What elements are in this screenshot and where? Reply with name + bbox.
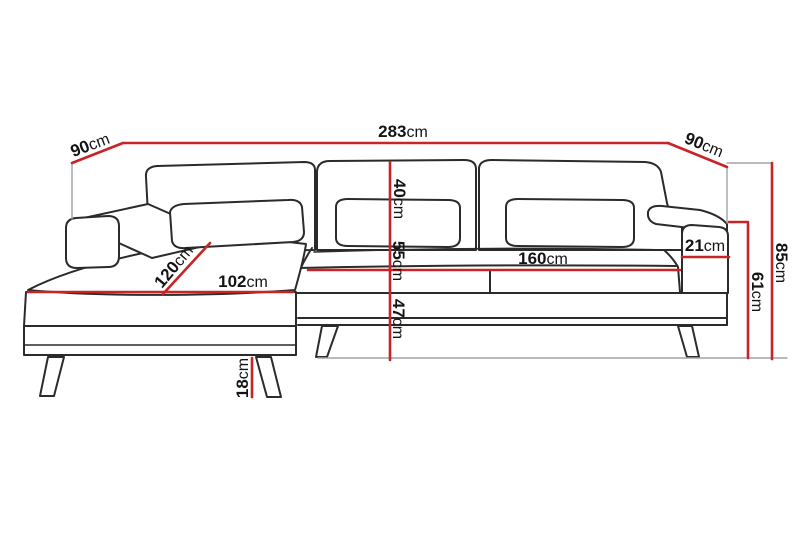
chaise-leg-left [40,357,64,396]
pillow-chaise [170,200,304,248]
chaise-base-band [24,292,296,326]
chaise-plinth [24,326,296,355]
diagram-svg: 283cm 90cm 90cm 85cm 61cm 21cm 40cm 55cm… [0,0,800,533]
dim-label-seat-height: 55cm [389,241,408,281]
dim-label-total-width: 283cm [378,122,428,141]
dim-label-seat-width: 160cm [518,249,568,268]
sofa-dimension-diagram: 283cm 90cm 90cm 85cm 61cm 21cm 40cm 55cm… [0,0,800,533]
dim-label-total-height: 85cm [772,243,791,283]
chaise-leg-right [256,357,281,397]
dim-label-leg-height: 18cm [233,358,252,398]
seat-front-top-edge [298,265,676,268]
dim-label-backrest-cushion-height: 40cm [390,179,409,219]
dim-label-armrest-height: 61cm [748,272,767,312]
sofa-outline [24,160,728,397]
dim-label-frame-height: 47cm [389,299,408,339]
left-armrest-front [66,216,119,268]
dimension-line-61 [729,222,748,358]
dim-label-armrest-thickness: 21cm [685,236,725,255]
pillow-right [506,199,634,247]
sofa-leg-right [678,326,699,357]
sofa-leg-mid [316,326,338,357]
dim-label-chaise-width: 102cm [218,272,268,291]
